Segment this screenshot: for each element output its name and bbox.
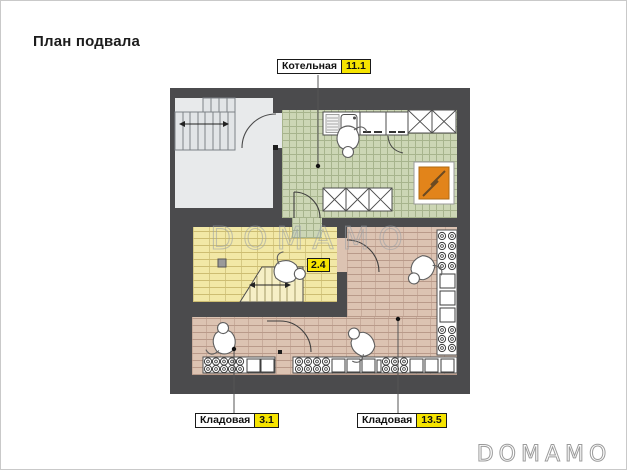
label-storage-small: Кладовая3.1 <box>195 413 279 428</box>
boiler-passage-floor <box>292 218 322 238</box>
page-title: План подвала <box>33 33 140 50</box>
label-boiler-room: Котельная11.1 <box>277 59 371 74</box>
badge-understairs-area: 2.4 <box>307 258 330 272</box>
label-storage-large-name: Кладовая <box>357 413 417 428</box>
label-boiler-area: 11.1 <box>342 59 371 74</box>
storage-door-opening <box>337 238 347 272</box>
boiler-room-floor <box>282 110 457 218</box>
label-storage-large-area: 13.5 <box>417 413 446 428</box>
floor-plan-page: План подвала <box>0 0 627 470</box>
storage-large-floor <box>347 227 457 317</box>
label-storage-large: Кладовая13.5 <box>357 413 447 428</box>
basement-plan <box>170 88 470 394</box>
brand-logo: DOMAMO <box>477 442 612 467</box>
storage-lower-floor <box>192 317 457 375</box>
hall-door-opening <box>273 113 282 148</box>
label-storage-small-name: Кладовая <box>195 413 255 428</box>
label-storage-small-area: 3.1 <box>255 413 279 428</box>
label-boiler-name: Котельная <box>277 59 342 74</box>
stair-hall-floor <box>175 98 273 208</box>
